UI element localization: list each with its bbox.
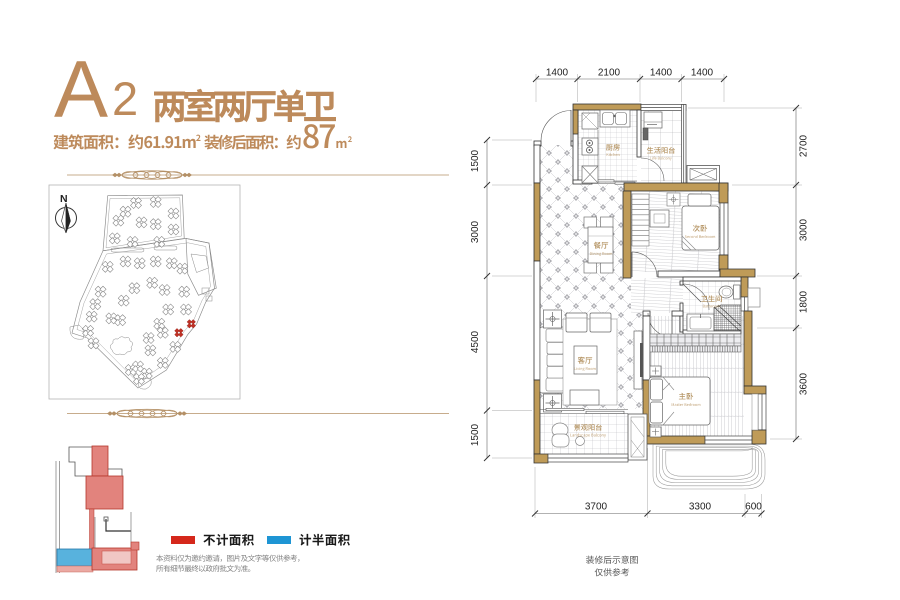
svg-text:1500: 1500 (470, 423, 481, 446)
svg-text:N: N (60, 193, 68, 205)
svg-text:1400: 1400 (650, 68, 673, 79)
svg-text:3700: 3700 (585, 502, 608, 513)
svg-text:A: A (54, 45, 108, 135)
svg-text:1500: 1500 (470, 149, 481, 172)
svg-text:3000: 3000 (470, 220, 481, 243)
svg-text:1400: 1400 (546, 68, 569, 79)
svg-text:2700: 2700 (799, 134, 810, 157)
svg-text:3000: 3000 (799, 218, 810, 241)
svg-text:4500: 4500 (470, 330, 481, 353)
svg-text:2: 2 (112, 72, 138, 125)
svg-text:1400: 1400 (691, 68, 714, 79)
svg-text:3600: 3600 (799, 372, 810, 395)
svg-text:3300: 3300 (689, 502, 712, 513)
svg-text:2100: 2100 (598, 68, 621, 79)
svg-text:1800: 1800 (799, 290, 810, 313)
svg-text:600: 600 (745, 502, 762, 513)
